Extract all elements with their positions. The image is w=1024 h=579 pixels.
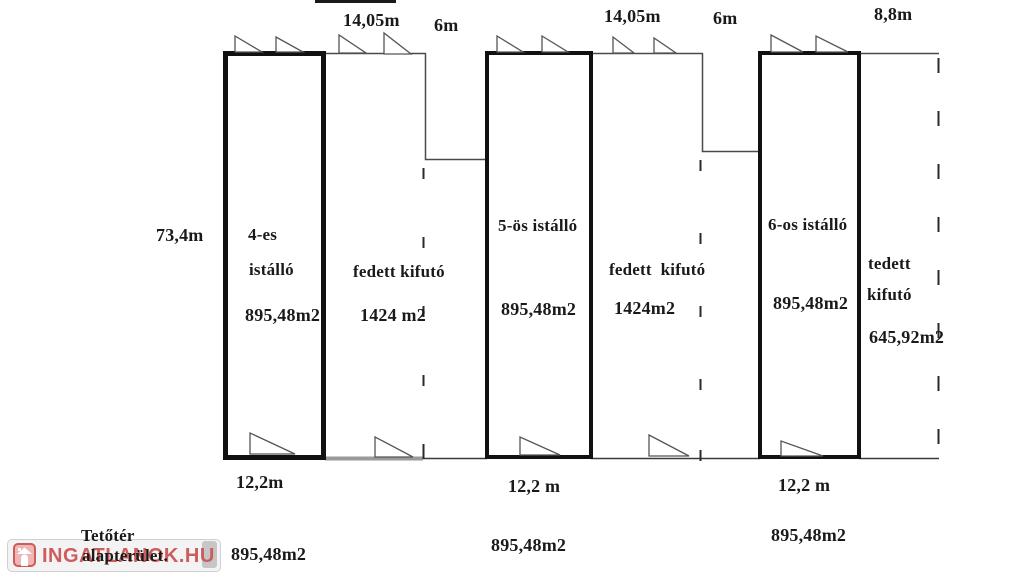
vent-triangle-icon [497, 36, 523, 52]
dimension-label-left: 73,4m [156, 226, 204, 244]
dimension-label-top-1: 14,05m [343, 11, 400, 29]
stable-6-outline [760, 53, 859, 457]
stable-6-area: 895,48m2 [773, 294, 848, 312]
attic-area-2: 895,48m2 [491, 536, 566, 554]
vent-triangle-icon [339, 35, 366, 53]
cropped-top-bar [315, 0, 396, 3]
vent-triangle-icon [276, 37, 303, 52]
covered-run-1-area: 1424 m2 [360, 306, 426, 324]
stable-5-area: 895,48m2 [501, 300, 576, 318]
covered-run-3-name-line-2: kifutó [867, 286, 912, 303]
covered-run-1-name: fedett kifutó [353, 263, 445, 280]
notch-line-1 [426, 54, 488, 160]
vent-triangle-icon [649, 435, 689, 456]
stable-4-area: 895,48m2 [245, 306, 320, 324]
covered-run-2-name: fedett kifutó [609, 261, 705, 278]
dimension-label-top-4: 6m [713, 9, 737, 27]
dimension-label-bottom-3: 12,2 m [778, 476, 830, 494]
dimension-label-top-2: 6m [434, 16, 458, 34]
vent-triangle-icon [235, 36, 262, 52]
house-icon [13, 543, 36, 567]
stable-6-name: 6-os istálló [768, 216, 847, 233]
stable-4-outline [226, 54, 324, 458]
dimension-label-bottom-1: 12,2m [236, 473, 284, 491]
stable-5-name: 5-ös istálló [498, 217, 577, 234]
attic-area-1: 895,48m2 [231, 545, 306, 563]
attic-title-line-1: Tetőtér [81, 527, 135, 544]
attic-area-3: 895,48m2 [771, 526, 846, 544]
stable-5-outline [487, 53, 591, 457]
floorplan: 14,05m 6m 14,05m 6m 8,8m 73,4m 12,2m 12,… [0, 0, 1024, 579]
vent-triangle-icon [384, 33, 411, 54]
covered-run-3-name-line-1: tedett [868, 255, 911, 272]
notch-line-2 [703, 54, 761, 152]
attic-title-line-2: alapterület. [82, 547, 168, 564]
covered-run-2-area: 1424m2 [614, 299, 675, 317]
stable-4-name-line-1: 4-es [248, 226, 277, 243]
dimension-label-top-5: 8,8m [874, 5, 912, 23]
dimension-label-top-3: 14,05m [604, 7, 661, 25]
covered-run-3-area: 645,92m2 [869, 328, 944, 346]
vent-triangle-icon [654, 38, 676, 53]
stable-4-name-line-2: istálló [249, 261, 294, 278]
vent-triangle-icon [542, 36, 568, 52]
vent-triangle-icon [816, 36, 848, 52]
vent-triangle-icon [771, 35, 803, 52]
dimension-label-bottom-2: 12,2 m [508, 477, 560, 495]
vent-triangle-icon [375, 437, 413, 457]
vent-triangle-icon [613, 37, 634, 53]
roof-vent-icons-top [235, 33, 848, 54]
